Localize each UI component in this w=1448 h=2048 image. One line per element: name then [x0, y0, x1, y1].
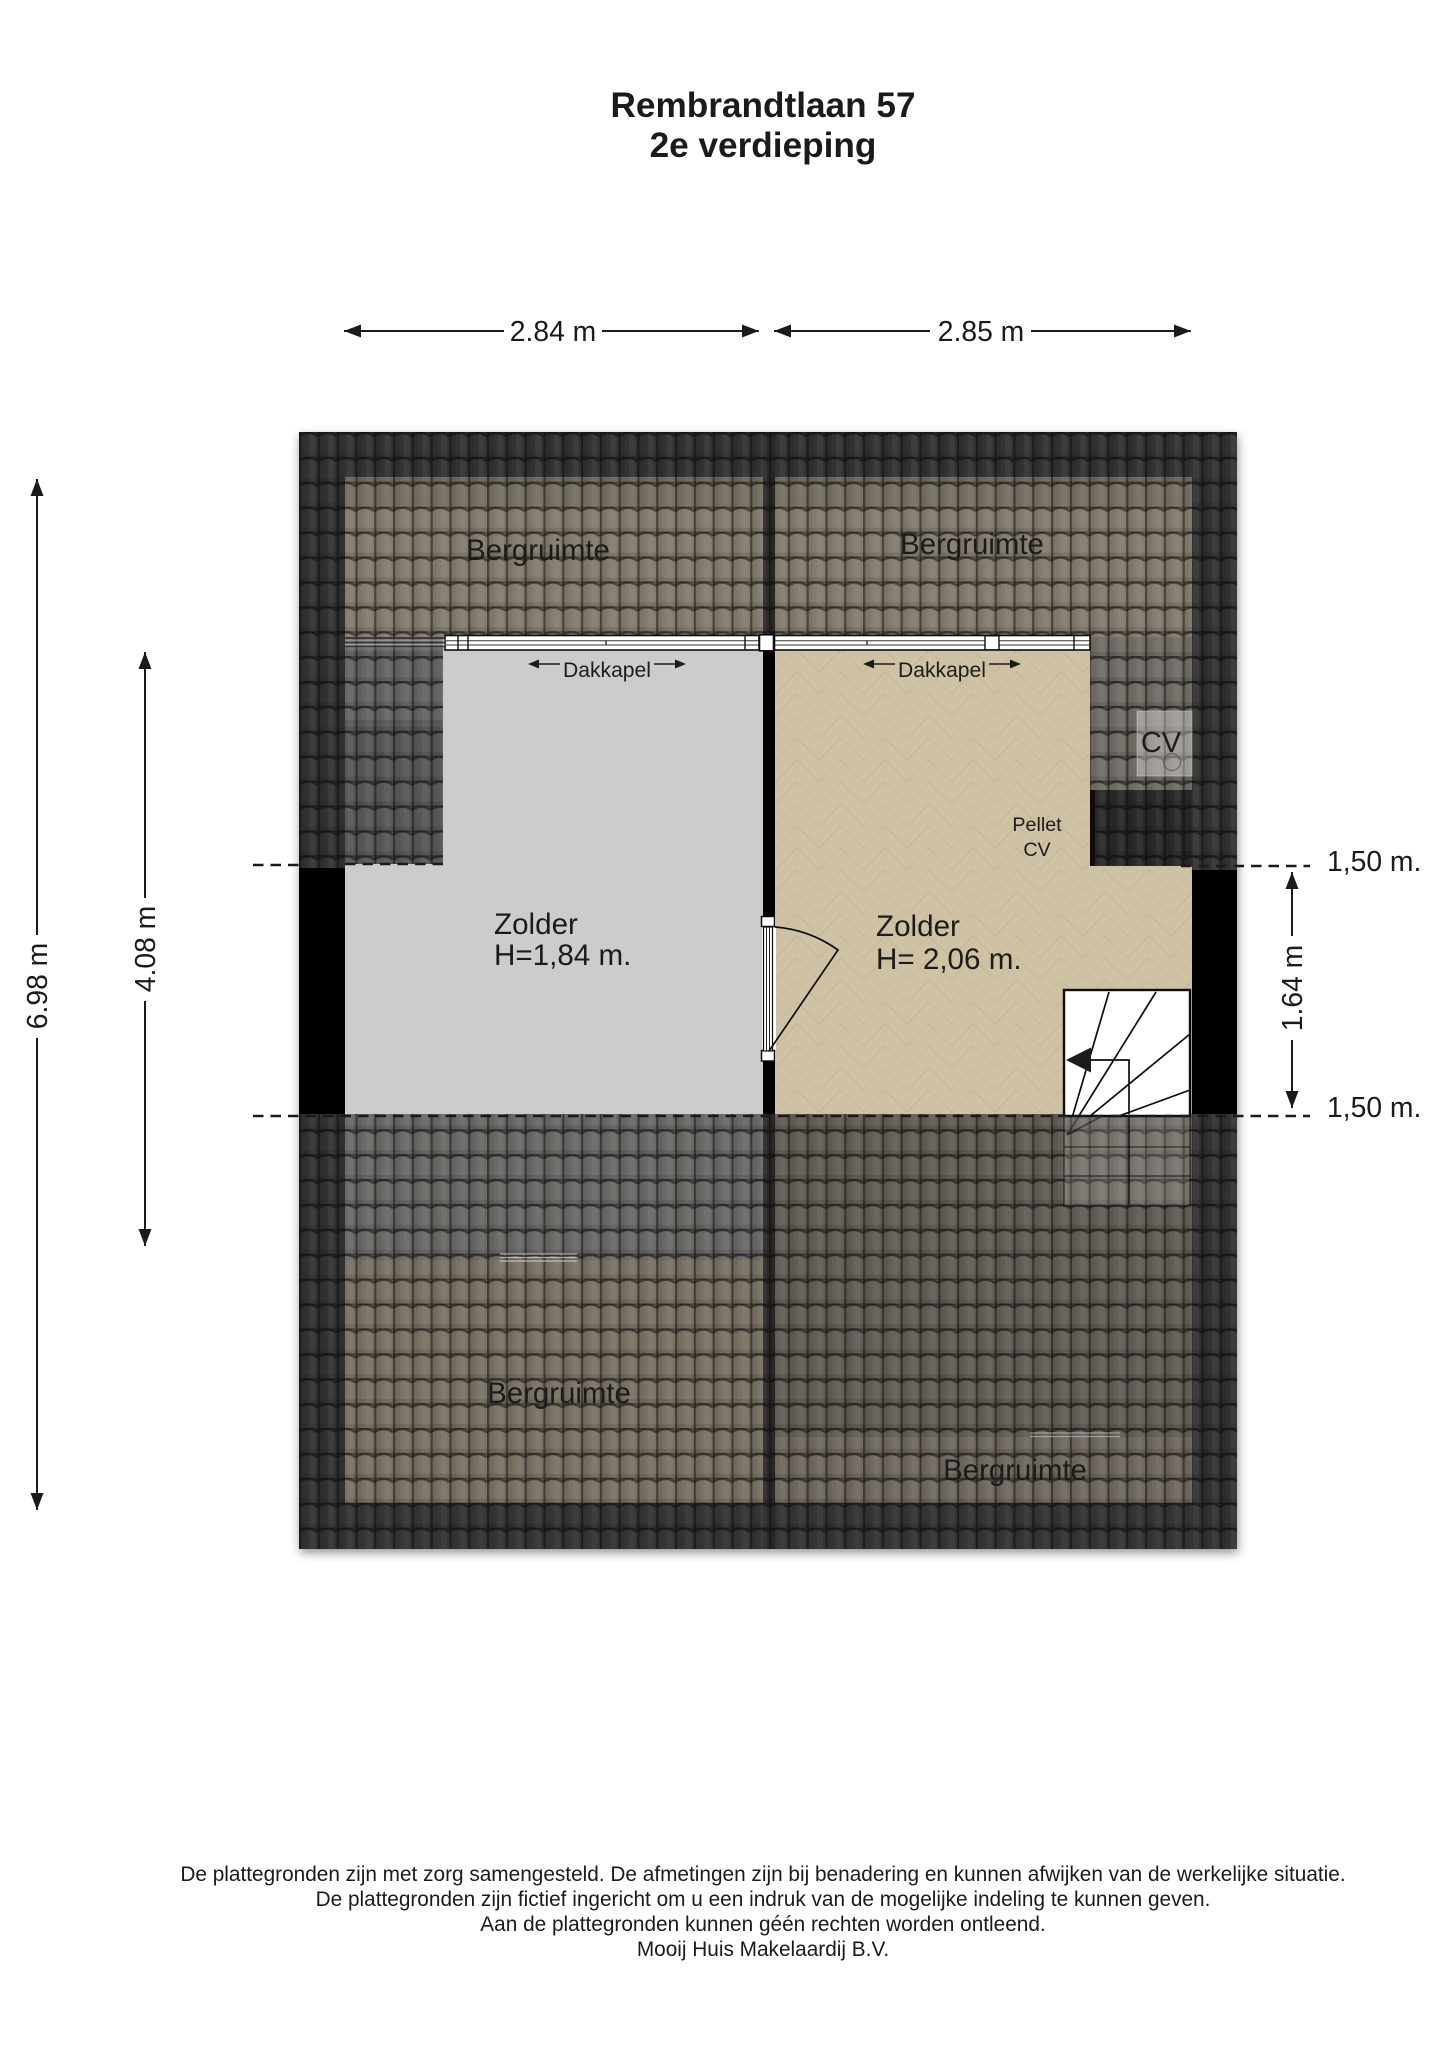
svg-text:6.98 m: 6.98 m [21, 943, 53, 1030]
svg-text:2.84 m: 2.84 m [510, 315, 597, 347]
svg-text:2.85 m: 2.85 m [938, 315, 1025, 347]
svg-text:Rembrandtlaan 57: Rembrandtlaan 57 [610, 86, 915, 125]
svg-text:Aan de plattegronden kunnen gé: Aan de plattegronden kunnen géén rechten… [480, 1913, 1045, 1936]
svg-text:2e verdieping: 2e verdieping [650, 126, 877, 165]
svg-text:CV: CV [1141, 727, 1182, 759]
svg-text:H=1,84 m.: H=1,84 m. [494, 939, 631, 972]
svg-text:1.64 m: 1.64 m [1276, 945, 1308, 1032]
svg-text:Bergruimte: Bergruimte [466, 534, 610, 567]
svg-text:1,50 m.: 1,50 m. [1327, 1091, 1421, 1123]
svg-text:Bergruimte: Bergruimte [487, 1377, 631, 1410]
svg-text:De plattegronden zijn met zorg: De plattegronden zijn met zorg samengest… [180, 1863, 1345, 1886]
svg-text:Bergruimte: Bergruimte [943, 1454, 1087, 1487]
svg-text:CV: CV [1023, 839, 1051, 861]
svg-text:Dakkapel: Dakkapel [563, 659, 651, 682]
svg-text:Dakkapel: Dakkapel [898, 659, 986, 682]
svg-text:1,50 m.: 1,50 m. [1327, 845, 1421, 877]
svg-text:Zolder: Zolder [494, 908, 578, 941]
svg-text:De plattegronden zijn fictief: De plattegronden zijn fictief ingericht … [316, 1888, 1211, 1911]
svg-text:Pellet: Pellet [1012, 814, 1062, 836]
svg-text:H= 2,06 m.: H= 2,06 m. [876, 943, 1022, 976]
svg-text:4.08 m: 4.08 m [129, 906, 161, 993]
svg-text:Bergruimte: Bergruimte [900, 528, 1044, 561]
svg-text:Zolder: Zolder [876, 910, 960, 943]
svg-text:Mooij Huis Makelaardij B.V.: Mooij Huis Makelaardij B.V. [637, 1938, 889, 1961]
